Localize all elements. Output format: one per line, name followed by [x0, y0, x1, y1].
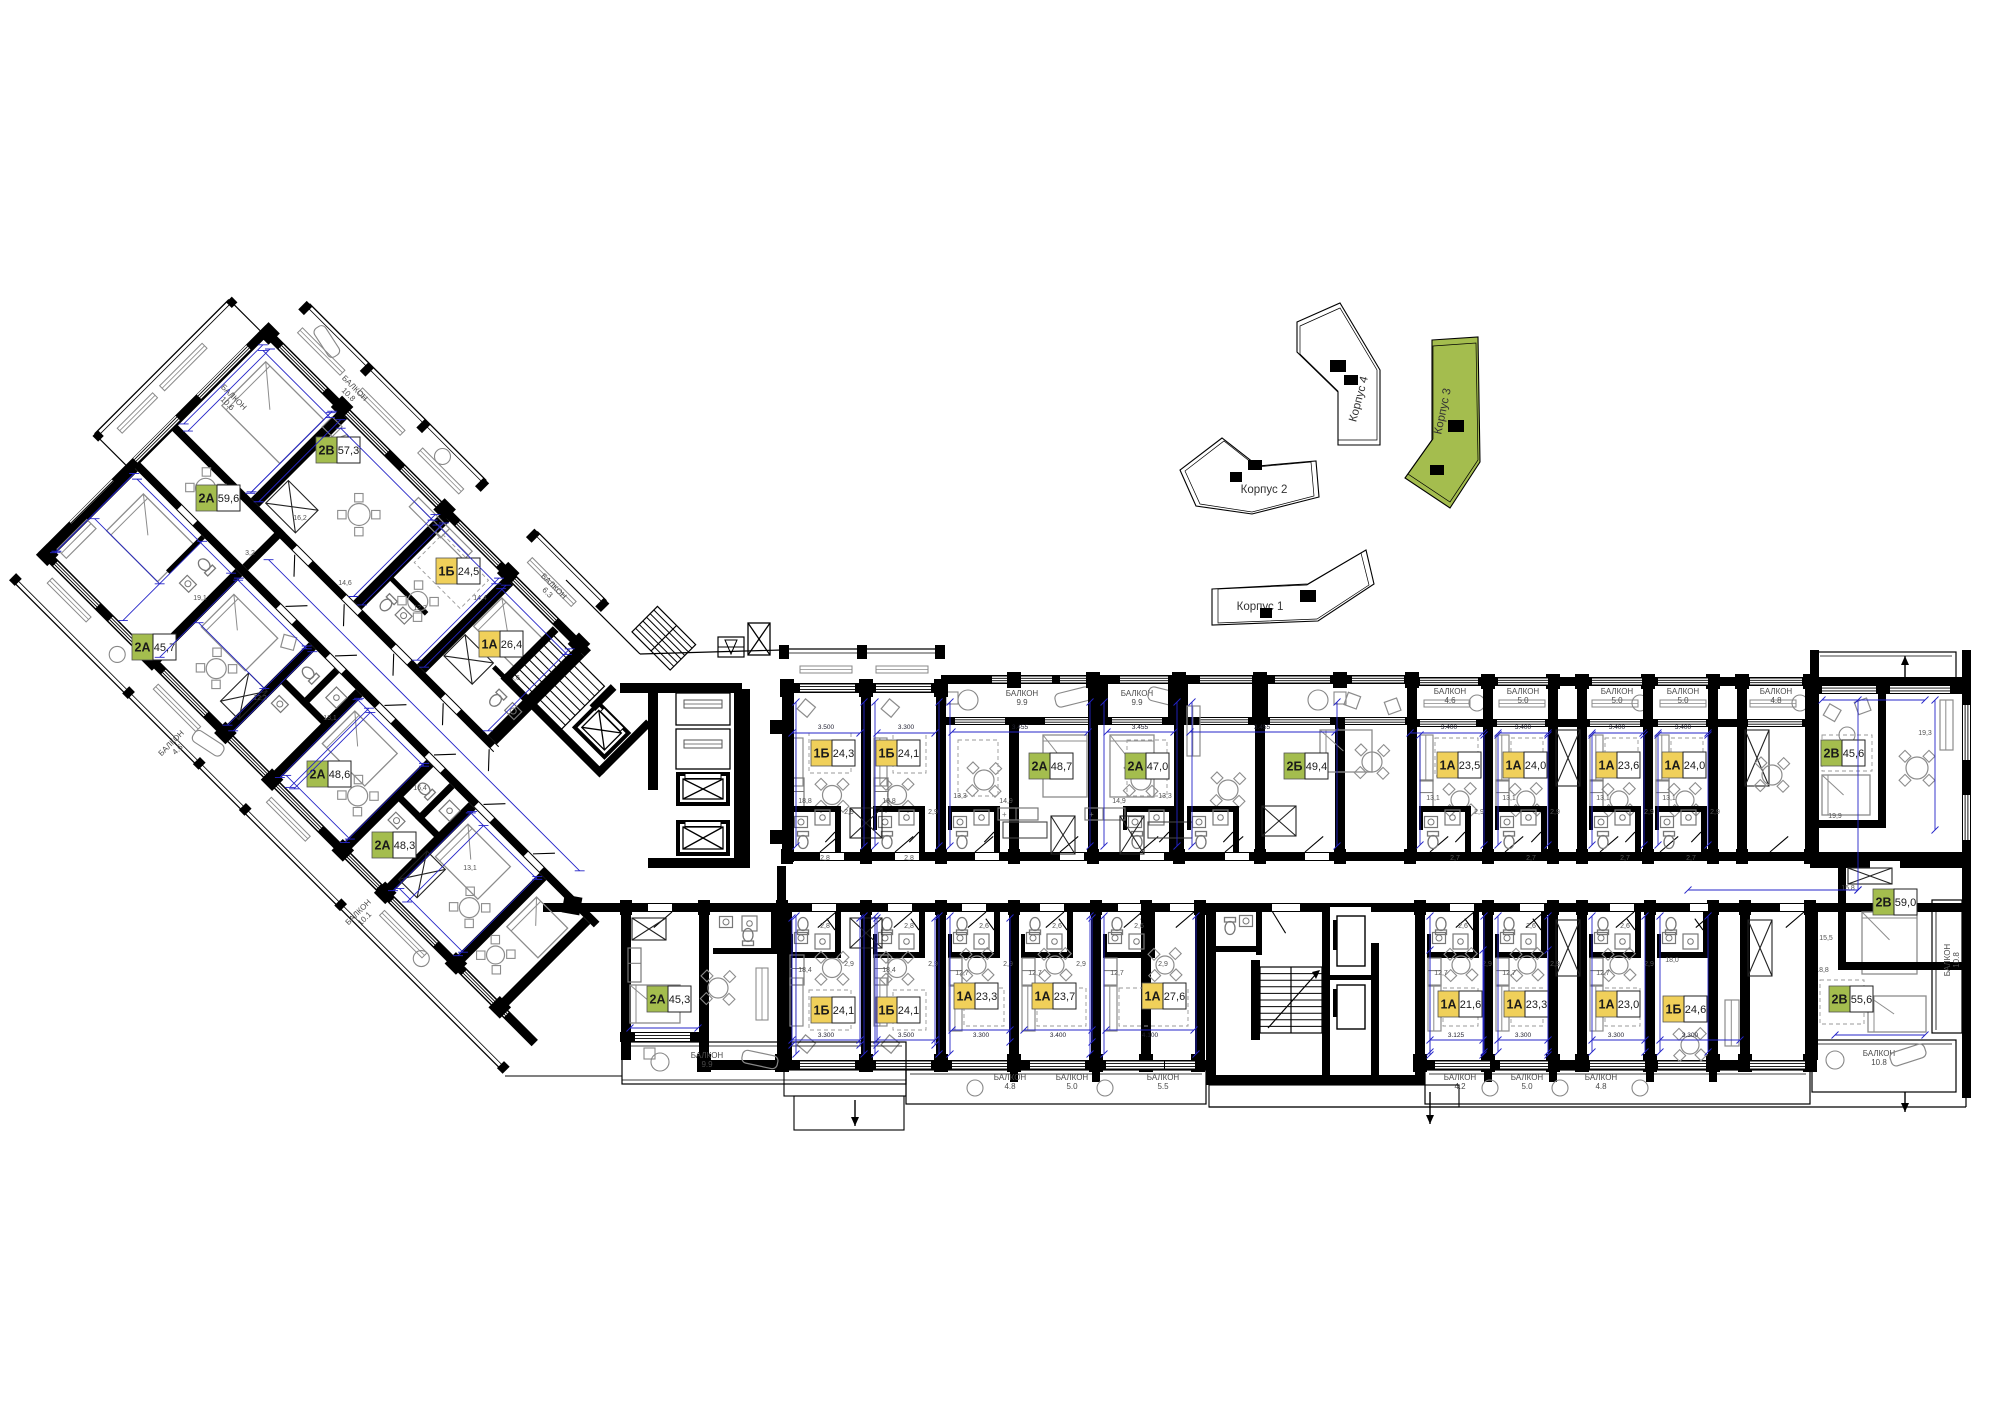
svg-text:12,7: 12,7 [1434, 970, 1448, 977]
svg-text:2,8: 2,8 [904, 923, 914, 930]
svg-text:48,3: 48,3 [394, 840, 415, 852]
svg-text:3.300: 3.300 [1515, 1032, 1532, 1039]
svg-text:1А: 1А [1441, 998, 1457, 1012]
svg-text:2,9: 2,9 [1710, 809, 1720, 816]
svg-text:3.400: 3.400 [1050, 1032, 1067, 1039]
svg-text:1Б: 1Б [879, 747, 895, 761]
svg-text:16,4: 16,4 [413, 785, 427, 792]
svg-text:2В: 2В [1824, 747, 1840, 761]
svg-text:14,9: 14,9 [1112, 798, 1126, 805]
svg-text:23,0: 23,0 [1618, 999, 1639, 1011]
svg-text:2,6: 2,6 [979, 923, 989, 930]
svg-text:9.9: 9.9 [1131, 698, 1143, 707]
svg-text:2Б: 2Б [1287, 760, 1303, 774]
svg-text:1Б: 1Б [439, 565, 455, 579]
svg-text:5.0: 5.0 [1066, 1082, 1078, 1091]
svg-text:23,3: 23,3 [976, 991, 997, 1003]
svg-text:13,3: 13,3 [953, 793, 967, 800]
svg-text:1А: 1А [1507, 998, 1523, 1012]
svg-text:БАЛКОН: БАЛКОН [1444, 1073, 1477, 1082]
svg-text:1Б: 1Б [1666, 1003, 1682, 1017]
svg-text:15,5: 15,5 [1819, 935, 1833, 942]
svg-text:57,3: 57,3 [338, 445, 359, 457]
svg-text:55,6: 55,6 [1851, 994, 1872, 1006]
svg-text:1Б: 1Б [879, 1004, 895, 1018]
svg-text:1А: 1А [1506, 759, 1522, 773]
svg-text:1А: 1А [482, 638, 498, 652]
svg-text:27,6: 27,6 [1164, 991, 1185, 1003]
svg-text:3.300: 3.300 [898, 724, 915, 731]
svg-text:12,7: 12,7 [1110, 970, 1124, 977]
svg-text:19,9: 19,9 [1828, 813, 1842, 820]
svg-text:12,2: 12,2 [253, 695, 267, 702]
svg-text:23,3: 23,3 [1526, 999, 1547, 1011]
svg-text:18,4: 18,4 [882, 967, 896, 974]
svg-text:49,4: 49,4 [1306, 761, 1327, 773]
svg-text:2,8: 2,8 [820, 923, 830, 930]
svg-text:24,1: 24,1 [898, 1005, 919, 1017]
svg-text:2А: 2А [135, 641, 151, 655]
svg-text:БАЛКОН: БАЛКОН [1434, 687, 1467, 696]
svg-text:Корпус 2: Корпус 2 [1241, 484, 1288, 496]
svg-text:1А: 1А [1440, 759, 1456, 773]
svg-text:2В: 2В [319, 444, 335, 458]
svg-text:БАЛКОН: БАЛКОН [1943, 944, 1952, 977]
svg-text:9.9: 9.9 [1016, 698, 1028, 707]
svg-text:59,0: 59,0 [1895, 897, 1916, 909]
svg-text:5.5: 5.5 [1157, 1082, 1169, 1091]
svg-text:1Б: 1Б [814, 747, 830, 761]
svg-text:3,2: 3,2 [245, 550, 255, 557]
svg-text:18,8: 18,8 [798, 798, 812, 805]
svg-text:БАЛКОН: БАЛКОН [994, 1073, 1027, 1082]
svg-text:+: + [1002, 810, 1007, 819]
svg-text:2,9: 2,9 [1474, 809, 1484, 816]
svg-text:12,7: 12,7 [1502, 970, 1516, 977]
svg-text:3.300: 3.300 [1608, 1032, 1625, 1039]
svg-text:3.455: 3.455 [1254, 724, 1271, 731]
svg-text:2,9: 2,9 [928, 809, 938, 816]
svg-text:13,1: 13,1 [323, 715, 337, 722]
svg-text:15,8: 15,8 [1841, 885, 1855, 892]
svg-text:47,0: 47,0 [1147, 761, 1168, 773]
svg-text:13,1: 13,1 [463, 865, 477, 872]
svg-text:12,7: 12,7 [955, 970, 969, 977]
svg-text:2,6: 2,6 [1134, 923, 1144, 930]
svg-text:23,6: 23,6 [1618, 760, 1639, 772]
svg-text:19,3: 19,3 [1918, 730, 1932, 737]
svg-text:18,4: 18,4 [798, 967, 812, 974]
svg-text:14,4: 14,4 [473, 595, 487, 602]
svg-text:2А: 2А [375, 839, 391, 853]
svg-text:23,7: 23,7 [1054, 991, 1075, 1003]
svg-text:БАЛКОН: БАЛКОН [1511, 1073, 1544, 1082]
svg-text:2,6: 2,6 [1052, 923, 1062, 930]
svg-text:2В: 2В [1876, 896, 1892, 910]
svg-text:13,3: 13,3 [1158, 793, 1172, 800]
svg-text:2,7: 2,7 [1526, 855, 1536, 862]
svg-text:9.9: 9.9 [701, 1060, 713, 1069]
svg-text:3.455: 3.455 [1132, 724, 1149, 731]
svg-text:4.2: 4.2 [1454, 1082, 1466, 1091]
svg-text:2,7: 2,7 [1450, 855, 1460, 862]
svg-text:1Б: 1Б [814, 1004, 830, 1018]
svg-text:2,7: 2,7 [1620, 855, 1630, 862]
svg-text:БАЛКОН: БАЛКОН [1056, 1073, 1089, 1082]
svg-text:24,5: 24,5 [458, 566, 479, 578]
svg-text:13,1: 13,1 [1426, 795, 1440, 802]
svg-text:5.0: 5.0 [1611, 696, 1623, 705]
svg-text:БАЛКОН: БАЛКОН [1601, 687, 1634, 696]
svg-text:БАЛКОН: БАЛКОН [1147, 1073, 1180, 1082]
svg-text:БАЛКОН: БАЛКОН [691, 1051, 724, 1060]
svg-text:24,0: 24,0 [1684, 760, 1705, 772]
svg-text:4.8: 4.8 [1770, 696, 1782, 705]
svg-text:5.0: 5.0 [1521, 1082, 1533, 1091]
svg-text:2А: 2А [1128, 760, 1144, 774]
svg-text:2,9: 2,9 [1550, 809, 1560, 816]
svg-text:12,7: 12,7 [1028, 970, 1042, 977]
svg-text:12,2: 12,2 [413, 605, 427, 612]
svg-text:4.100: 4.100 [1142, 1032, 1159, 1039]
svg-text:12,7: 12,7 [1596, 970, 1610, 977]
svg-text:3.400: 3.400 [1609, 724, 1626, 731]
svg-text:2,9: 2,9 [844, 961, 854, 968]
svg-text:2,9: 2,9 [1076, 961, 1086, 968]
svg-text:2,9: 2,9 [928, 961, 938, 968]
svg-text:БАЛКОН: БАЛКОН [1585, 1073, 1618, 1082]
svg-text:2А: 2А [650, 993, 666, 1007]
svg-text:18,8: 18,8 [882, 798, 896, 805]
svg-text:2,8: 2,8 [820, 855, 830, 862]
svg-text:59,6: 59,6 [218, 493, 239, 505]
svg-text:1А: 1А [1599, 759, 1615, 773]
svg-text:БАЛКОН: БАЛКОН [1006, 689, 1039, 698]
svg-text:14,6: 14,6 [338, 580, 352, 587]
svg-text:2,6: 2,6 [1458, 923, 1468, 930]
svg-text:4.8: 4.8 [1595, 1082, 1607, 1091]
svg-text:2,9: 2,9 [1003, 961, 1013, 968]
svg-text:1А: 1А [1599, 998, 1615, 1012]
svg-text:1А: 1А [1035, 990, 1051, 1004]
svg-text:2,7: 2,7 [1686, 855, 1696, 862]
svg-text:48,6: 48,6 [329, 769, 350, 781]
svg-text:24,1: 24,1 [898, 748, 919, 760]
svg-text:2,9: 2,9 [1644, 809, 1654, 816]
svg-text:4.6: 4.6 [1444, 696, 1456, 705]
svg-text:3.400: 3.400 [1515, 724, 1532, 731]
svg-text:1А: 1А [1665, 759, 1681, 773]
svg-text:45,3: 45,3 [669, 994, 690, 1006]
svg-text:3.500: 3.500 [818, 724, 835, 731]
svg-text:24,0: 24,0 [1525, 760, 1546, 772]
svg-text:1А: 1А [1145, 990, 1161, 1004]
svg-text:23,5: 23,5 [1459, 760, 1480, 772]
svg-text:2,8: 2,8 [904, 855, 914, 862]
svg-text:3.500: 3.500 [898, 1032, 915, 1039]
svg-text:3.400: 3.400 [1675, 724, 1692, 731]
svg-text:2А: 2А [1032, 760, 1048, 774]
svg-text:18,0: 18,0 [1665, 957, 1679, 964]
svg-text:3.125: 3.125 [1448, 1032, 1465, 1039]
svg-text:24,3: 24,3 [833, 748, 854, 760]
svg-text:21,6: 21,6 [1460, 999, 1481, 1011]
svg-text:4.8: 4.8 [1004, 1082, 1016, 1091]
svg-text:3.300: 3.300 [818, 1032, 835, 1039]
svg-text:3.400: 3.400 [1441, 724, 1458, 731]
svg-text:3.300: 3.300 [973, 1032, 990, 1039]
svg-text:БАЛКОН: БАЛКОН [1667, 687, 1700, 696]
svg-text:2В: 2В [1832, 993, 1848, 1007]
svg-text:13,1: 13,1 [1502, 795, 1516, 802]
svg-text:10.8: 10.8 [1952, 952, 1961, 968]
svg-text:5.0: 5.0 [1517, 696, 1529, 705]
svg-text:2А: 2А [310, 768, 326, 782]
svg-text:48,7: 48,7 [1051, 761, 1072, 773]
svg-text:2А: 2А [199, 492, 215, 506]
svg-text:2,9: 2,9 [1550, 961, 1560, 968]
svg-text:2,9: 2,9 [1158, 961, 1168, 968]
svg-text:1А: 1А [957, 990, 973, 1004]
svg-text:13,1: 13,1 [1596, 795, 1610, 802]
svg-text:10.8: 10.8 [1871, 1058, 1887, 1067]
svg-text:24,1: 24,1 [833, 1005, 854, 1017]
svg-text:5.0: 5.0 [1677, 696, 1689, 705]
svg-text:19,1: 19,1 [193, 595, 207, 602]
svg-text:БАЛКОН: БАЛКОН [1760, 687, 1793, 696]
svg-text:13,1: 13,1 [1662, 795, 1676, 802]
svg-text:3.455: 3.455 [1012, 724, 1029, 731]
svg-text:2,6: 2,6 [1620, 923, 1630, 930]
svg-text:БАЛКОН: БАЛКОН [1507, 687, 1540, 696]
svg-text:16,2: 16,2 [293, 515, 307, 522]
svg-text:45,6: 45,6 [1843, 748, 1864, 760]
svg-text:26,4: 26,4 [501, 639, 522, 651]
svg-text:14,9: 14,9 [999, 798, 1013, 805]
svg-text:2,6: 2,6 [1526, 923, 1536, 930]
svg-text:2,9: 2,9 [1644, 961, 1654, 968]
svg-text:3.300: 3.300 [1682, 1032, 1699, 1039]
svg-text:24,6: 24,6 [1685, 1004, 1706, 1016]
